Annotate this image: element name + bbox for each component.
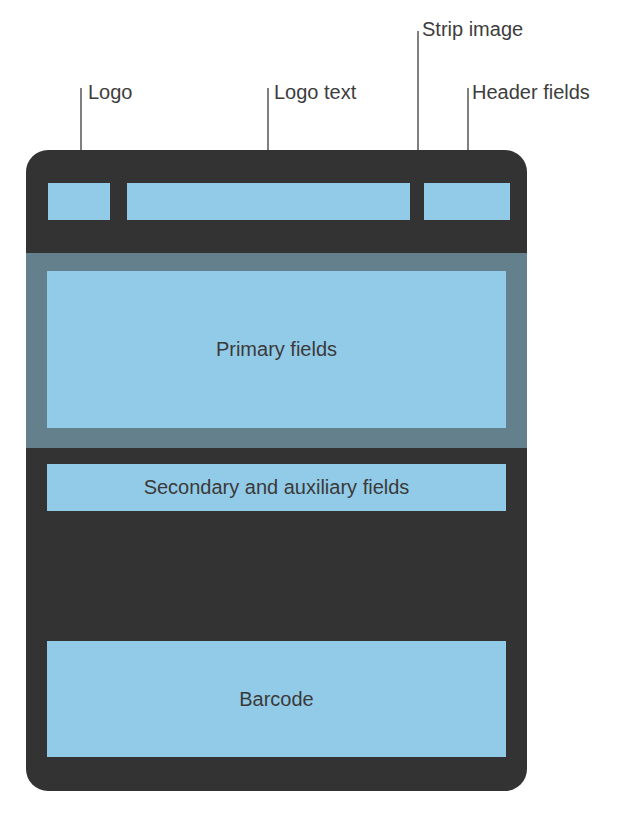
logo-label: Logo bbox=[88, 80, 133, 104]
strip-image-leader-line bbox=[417, 31, 419, 151]
logo-text-label: Logo text bbox=[274, 80, 356, 104]
logo-text-leader-line bbox=[267, 88, 269, 151]
primary-fields-region-label: Primary fields bbox=[216, 338, 337, 361]
primary-fields-region: Primary fields bbox=[47, 271, 506, 428]
header-fields-label: Header fields bbox=[472, 80, 590, 104]
header-fields-leader-line bbox=[467, 88, 469, 151]
wallet-pass: Primary fields Secondary and auxiliary f… bbox=[26, 150, 527, 791]
secondary-auxiliary-fields-region: Secondary and auxiliary fields bbox=[47, 464, 506, 511]
logo-text-region bbox=[127, 183, 410, 220]
secondary-auxiliary-fields-region-label: Secondary and auxiliary fields bbox=[144, 476, 410, 499]
barcode-region: Barcode bbox=[47, 641, 506, 757]
strip-image-region: Primary fields bbox=[26, 253, 527, 448]
header-fields-region bbox=[424, 183, 510, 220]
logo-leader-line bbox=[80, 88, 82, 151]
pass-layout-diagram: Strip image Logo Logo text Header fields… bbox=[0, 0, 624, 820]
barcode-region-label: Barcode bbox=[239, 688, 314, 711]
logo-region bbox=[48, 183, 110, 220]
strip-image-label: Strip image bbox=[422, 17, 523, 41]
